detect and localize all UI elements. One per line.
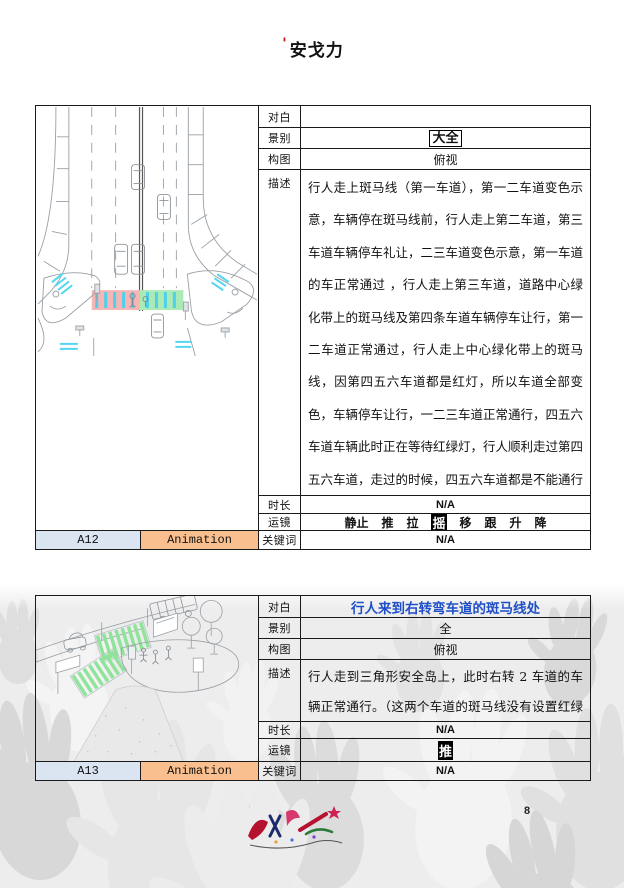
camera-move-value-a12: 静止 推 拉 摇 移 跟 升 降 (301, 514, 591, 531)
row-label-description: 描述 (259, 660, 301, 722)
row-label-shot-type: 景别 (259, 128, 301, 149)
crossing-isometric-sketch (36, 596, 258, 762)
row-label-shot-type: 景别 (259, 618, 301, 639)
move-rise: 升 (510, 514, 522, 531)
footer-graffiti-logo (242, 802, 350, 854)
keywords-value-a13: N/A (301, 762, 591, 781)
selected-shot-type: 大全 (429, 130, 461, 147)
brand-mark-icon: ' (280, 36, 289, 52)
shot-type-tag-a13: Animation (141, 762, 259, 781)
composition-value-a13: 俯视 (301, 639, 591, 660)
description-value-a13: 行人走到三角形安全岛上，此时右转 2 车道的车辆正常通行。（这两个车道的斑马线没… (301, 660, 591, 722)
row-label-camera-move: 运镜 (259, 739, 301, 762)
row-label-keywords: 关键词 (259, 762, 301, 781)
composition-value-a12: 俯视 (301, 149, 591, 170)
row-label-duration: 时长 (259, 496, 301, 514)
move-truck: 移 (460, 514, 472, 531)
shot-id-a12: A12 (36, 531, 141, 550)
move-push: 推 (381, 514, 393, 531)
storyboard-sketch-a12 (36, 106, 259, 531)
move-fall: 降 (535, 514, 547, 531)
intersection-topview-sketch (36, 106, 258, 531)
keywords-value-a12: N/A (301, 531, 591, 550)
row-label-composition: 构图 (259, 639, 301, 660)
dialogue-value-a13: 行人来到右转弯车道的斑马线处 (301, 596, 591, 618)
dialogue-title: 行人来到右转弯车道的斑马线处 (351, 597, 540, 617)
duration-value-a13: N/A (301, 722, 591, 739)
row-label-keywords: 关键词 (259, 531, 301, 550)
move-follow: 跟 (485, 514, 497, 531)
brand-name: 安戈力 (290, 41, 344, 61)
storyboard-table-a13: 对白 行人来到右转弯车道的斑马线处 景别 全 构图 俯视 描述 行人走到三角形安… (35, 595, 591, 781)
shot-id-a13: A13 (36, 762, 141, 781)
shot-type-value-a13: 全 (301, 618, 591, 639)
dialogue-value-a12 (301, 106, 591, 128)
row-label-description: 描述 (259, 170, 301, 496)
description-value-a12: 行人走上斑马线（第一车道），第一二车道变色示意，车辆停在斑马线前，行人走上第二车… (301, 170, 591, 496)
move-push-selected: 推 (438, 741, 453, 760)
move-static: 静止 (344, 514, 368, 531)
brand-logo: '安戈力 (0, 36, 624, 61)
row-label-dialogue: 对白 (259, 106, 301, 128)
camera-move-options: 静止 推 拉 摇 移 跟 升 降 (344, 514, 546, 531)
duration-value-a12: N/A (301, 496, 591, 514)
storyboard-table-a12: 对白 景别 大全 构图 俯视 描述 行人走上斑马线（第一车道），第一二车道变色示… (35, 105, 591, 550)
camera-move-value-a13: 推 (301, 739, 591, 762)
row-label-camera-move: 运镜 (259, 514, 301, 531)
row-label-duration: 时长 (259, 722, 301, 739)
move-pan-selected: 摇 (431, 514, 446, 531)
row-label-composition: 构图 (259, 149, 301, 170)
move-pull: 拉 (406, 514, 418, 531)
storyboard-sketch-a13 (36, 596, 259, 762)
row-label-dialogue: 对白 (259, 596, 301, 618)
page-number: 8 (524, 805, 530, 817)
shot-type-value-a12: 大全 (301, 128, 591, 149)
shot-type-tag-a12: Animation (141, 531, 259, 550)
